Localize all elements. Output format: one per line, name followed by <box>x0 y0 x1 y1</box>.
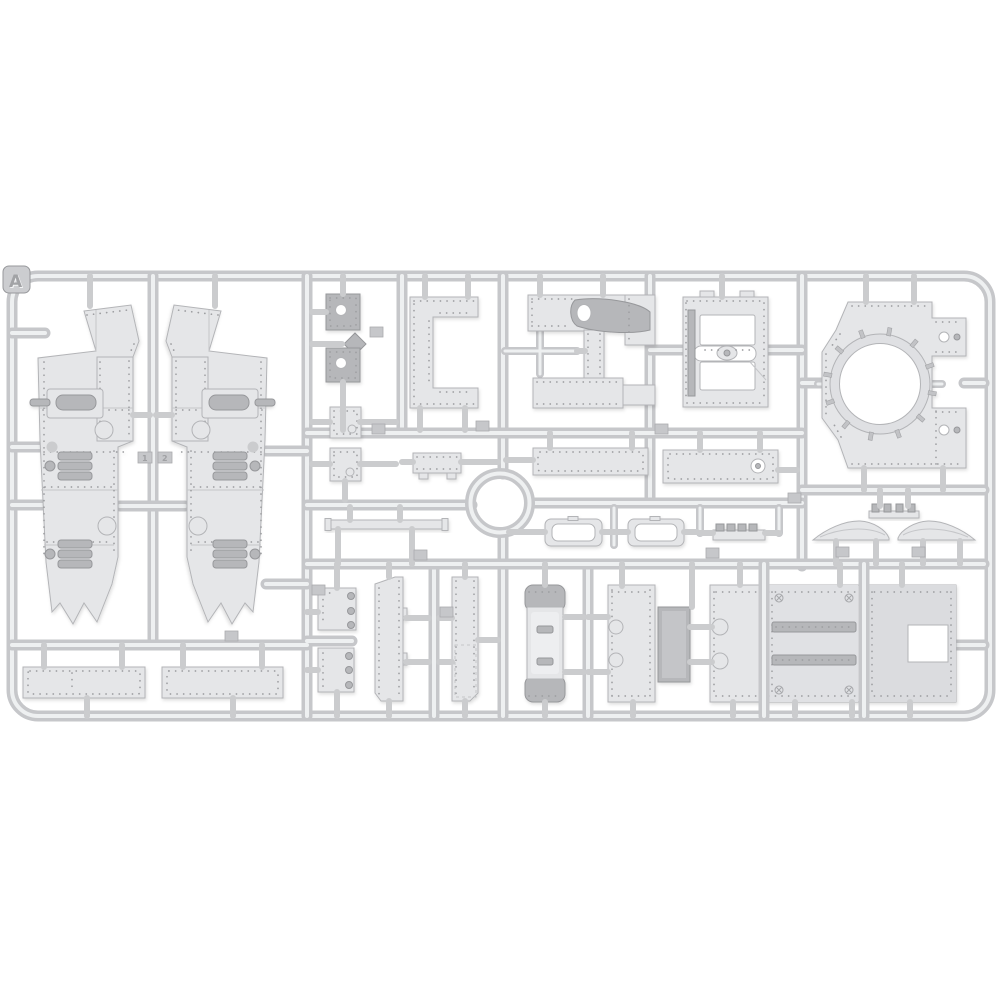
roof-rail-2 <box>772 655 856 665</box>
roof-rail-1 <box>772 622 856 632</box>
part-mount-plate-light-2 <box>330 448 361 481</box>
part-narrow-panel-2 <box>452 577 478 701</box>
part-roof-plates <box>710 585 956 702</box>
part-hull-side-panel-left <box>30 305 139 624</box>
part-c-bracket <box>410 297 478 408</box>
part-oval-frame-2 <box>628 517 684 547</box>
hull-hatch-handle <box>30 399 50 406</box>
part-mount-plate-dark-1 <box>326 294 360 330</box>
part-comb-rail <box>713 524 765 540</box>
part-oval-frame-1 <box>545 517 602 547</box>
sprue-label: A <box>9 272 23 292</box>
part-teeth-bracket <box>869 504 919 518</box>
sprue-drawing: A A <box>0 0 1000 1000</box>
part-sponson-box <box>658 607 690 682</box>
part-hull-side-panel-right <box>166 305 275 624</box>
part-thin-strip <box>325 519 448 531</box>
roof-hatch-opening <box>908 625 948 662</box>
part-floor-strip-1 <box>23 667 145 698</box>
sprue-photo: A A <box>0 0 1000 1000</box>
part-riveted-beam-1 <box>533 448 648 475</box>
part-fuel-drum <box>525 585 565 702</box>
part-mg-hatch-plate <box>683 291 768 407</box>
part-square-plate-2 <box>318 648 354 692</box>
part-airfoil-fairing-left <box>813 521 889 540</box>
gate-knob-left <box>47 442 58 453</box>
part-small-footed-plate <box>413 453 461 479</box>
part-mount-plate-dark-2 <box>326 348 360 382</box>
part-riveted-beam-2 <box>663 450 778 483</box>
gate-knob-right <box>248 442 259 453</box>
part-airfoil-fairing-right <box>898 521 975 540</box>
part-narrow-panel-1 <box>375 577 407 701</box>
sprue-label-tab: A A <box>3 266 30 293</box>
tag-2: 2 <box>162 454 168 463</box>
part-floor-strip-2 <box>162 667 283 698</box>
part-sponson-plate <box>608 585 655 702</box>
tag-1: 1 <box>142 454 148 463</box>
